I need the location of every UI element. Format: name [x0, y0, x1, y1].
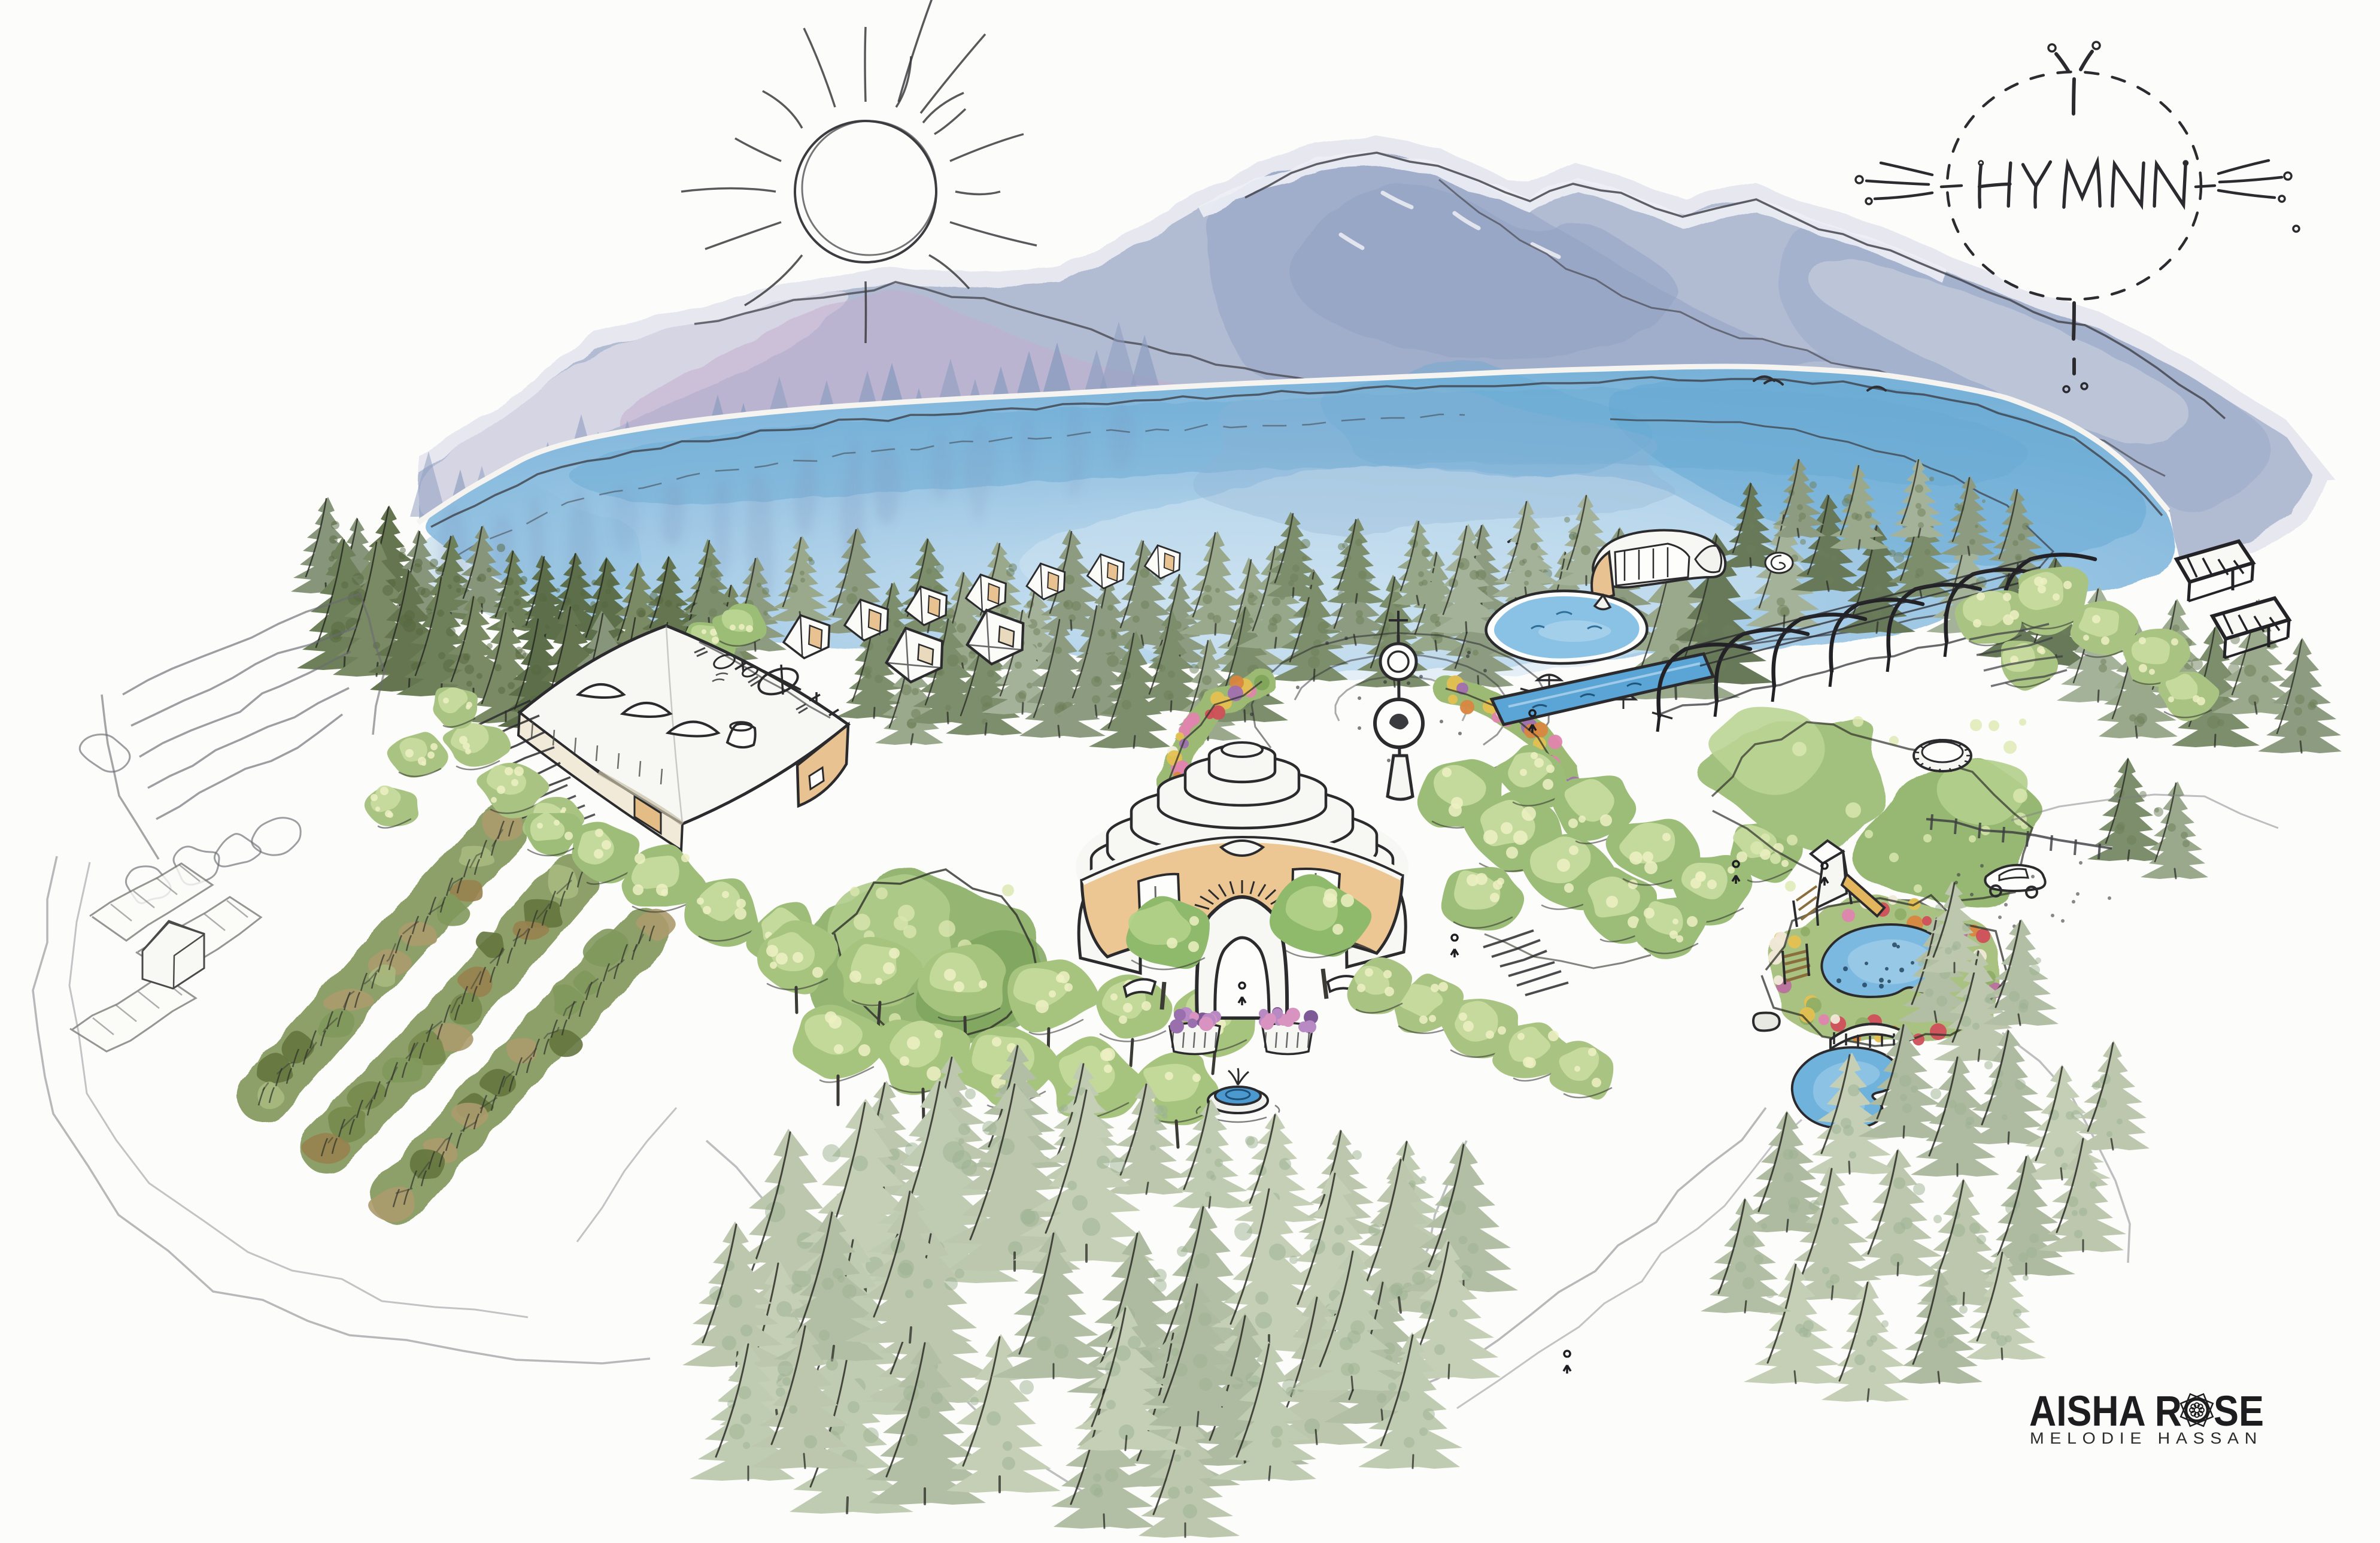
svg-text:SE: SE — [2214, 1388, 2264, 1435]
svg-text:MELODIE HASSAN: MELODIE HASSAN — [2030, 1429, 2263, 1447]
svg-text:AISHA R: AISHA R — [2029, 1388, 2182, 1435]
